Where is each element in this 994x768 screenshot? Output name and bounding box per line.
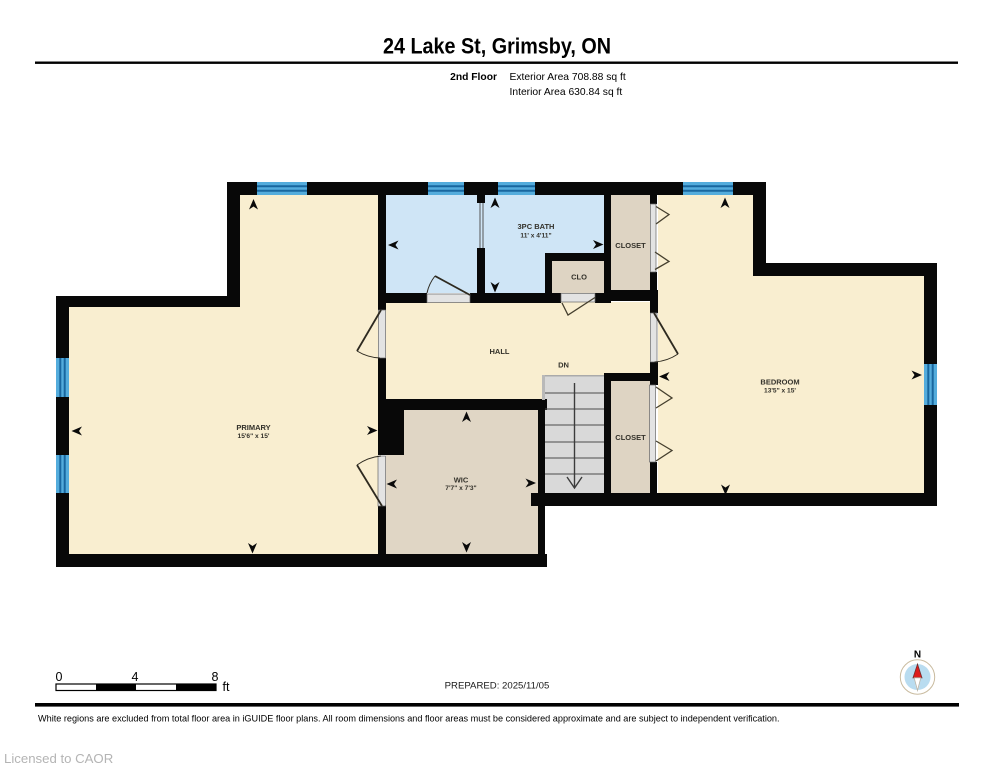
svg-text:13'5" x 15': 13'5" x 15' (764, 388, 796, 395)
svg-text:Interior Area 630.84 sq ft: Interior Area 630.84 sq ft (510, 87, 623, 98)
svg-text:CLOSET: CLOSET (615, 433, 646, 442)
svg-text:7'7" x 7'3": 7'7" x 7'3" (445, 485, 476, 492)
svg-text:DN: DN (558, 361, 569, 370)
svg-text:Licensed to CAOR: Licensed to CAOR (4, 751, 113, 766)
svg-text:15'6" x 15': 15'6" x 15' (238, 433, 270, 440)
svg-text:PRIMARY: PRIMARY (236, 423, 270, 432)
svg-text:2nd Floor: 2nd Floor (450, 72, 497, 83)
svg-text:11' x 4'11": 11' x 4'11" (520, 233, 551, 240)
svg-text:3PC BATH: 3PC BATH (518, 222, 555, 231)
svg-text:4: 4 (132, 670, 139, 684)
svg-text:0: 0 (56, 670, 63, 684)
svg-text:Exterior Area 708.88 sq ft: Exterior Area 708.88 sq ft (510, 72, 626, 83)
svg-text:N: N (914, 650, 921, 661)
svg-text:HALL: HALL (490, 347, 510, 356)
svg-text:PREPARED: 2025/11/05: PREPARED: 2025/11/05 (445, 681, 550, 692)
svg-text:CLO: CLO (571, 273, 587, 282)
svg-text:CLOSET: CLOSET (615, 241, 646, 250)
svg-text:24 Lake St, Grimsby, ON: 24 Lake St, Grimsby, ON (383, 34, 611, 59)
svg-text:8: 8 (212, 670, 219, 684)
svg-text:ft: ft (223, 680, 230, 694)
svg-text:WIC: WIC (454, 476, 469, 485)
svg-text:BEDROOM: BEDROOM (760, 378, 799, 387)
svg-text:White regions are excluded fro: White regions are excluded from total fl… (38, 714, 780, 724)
